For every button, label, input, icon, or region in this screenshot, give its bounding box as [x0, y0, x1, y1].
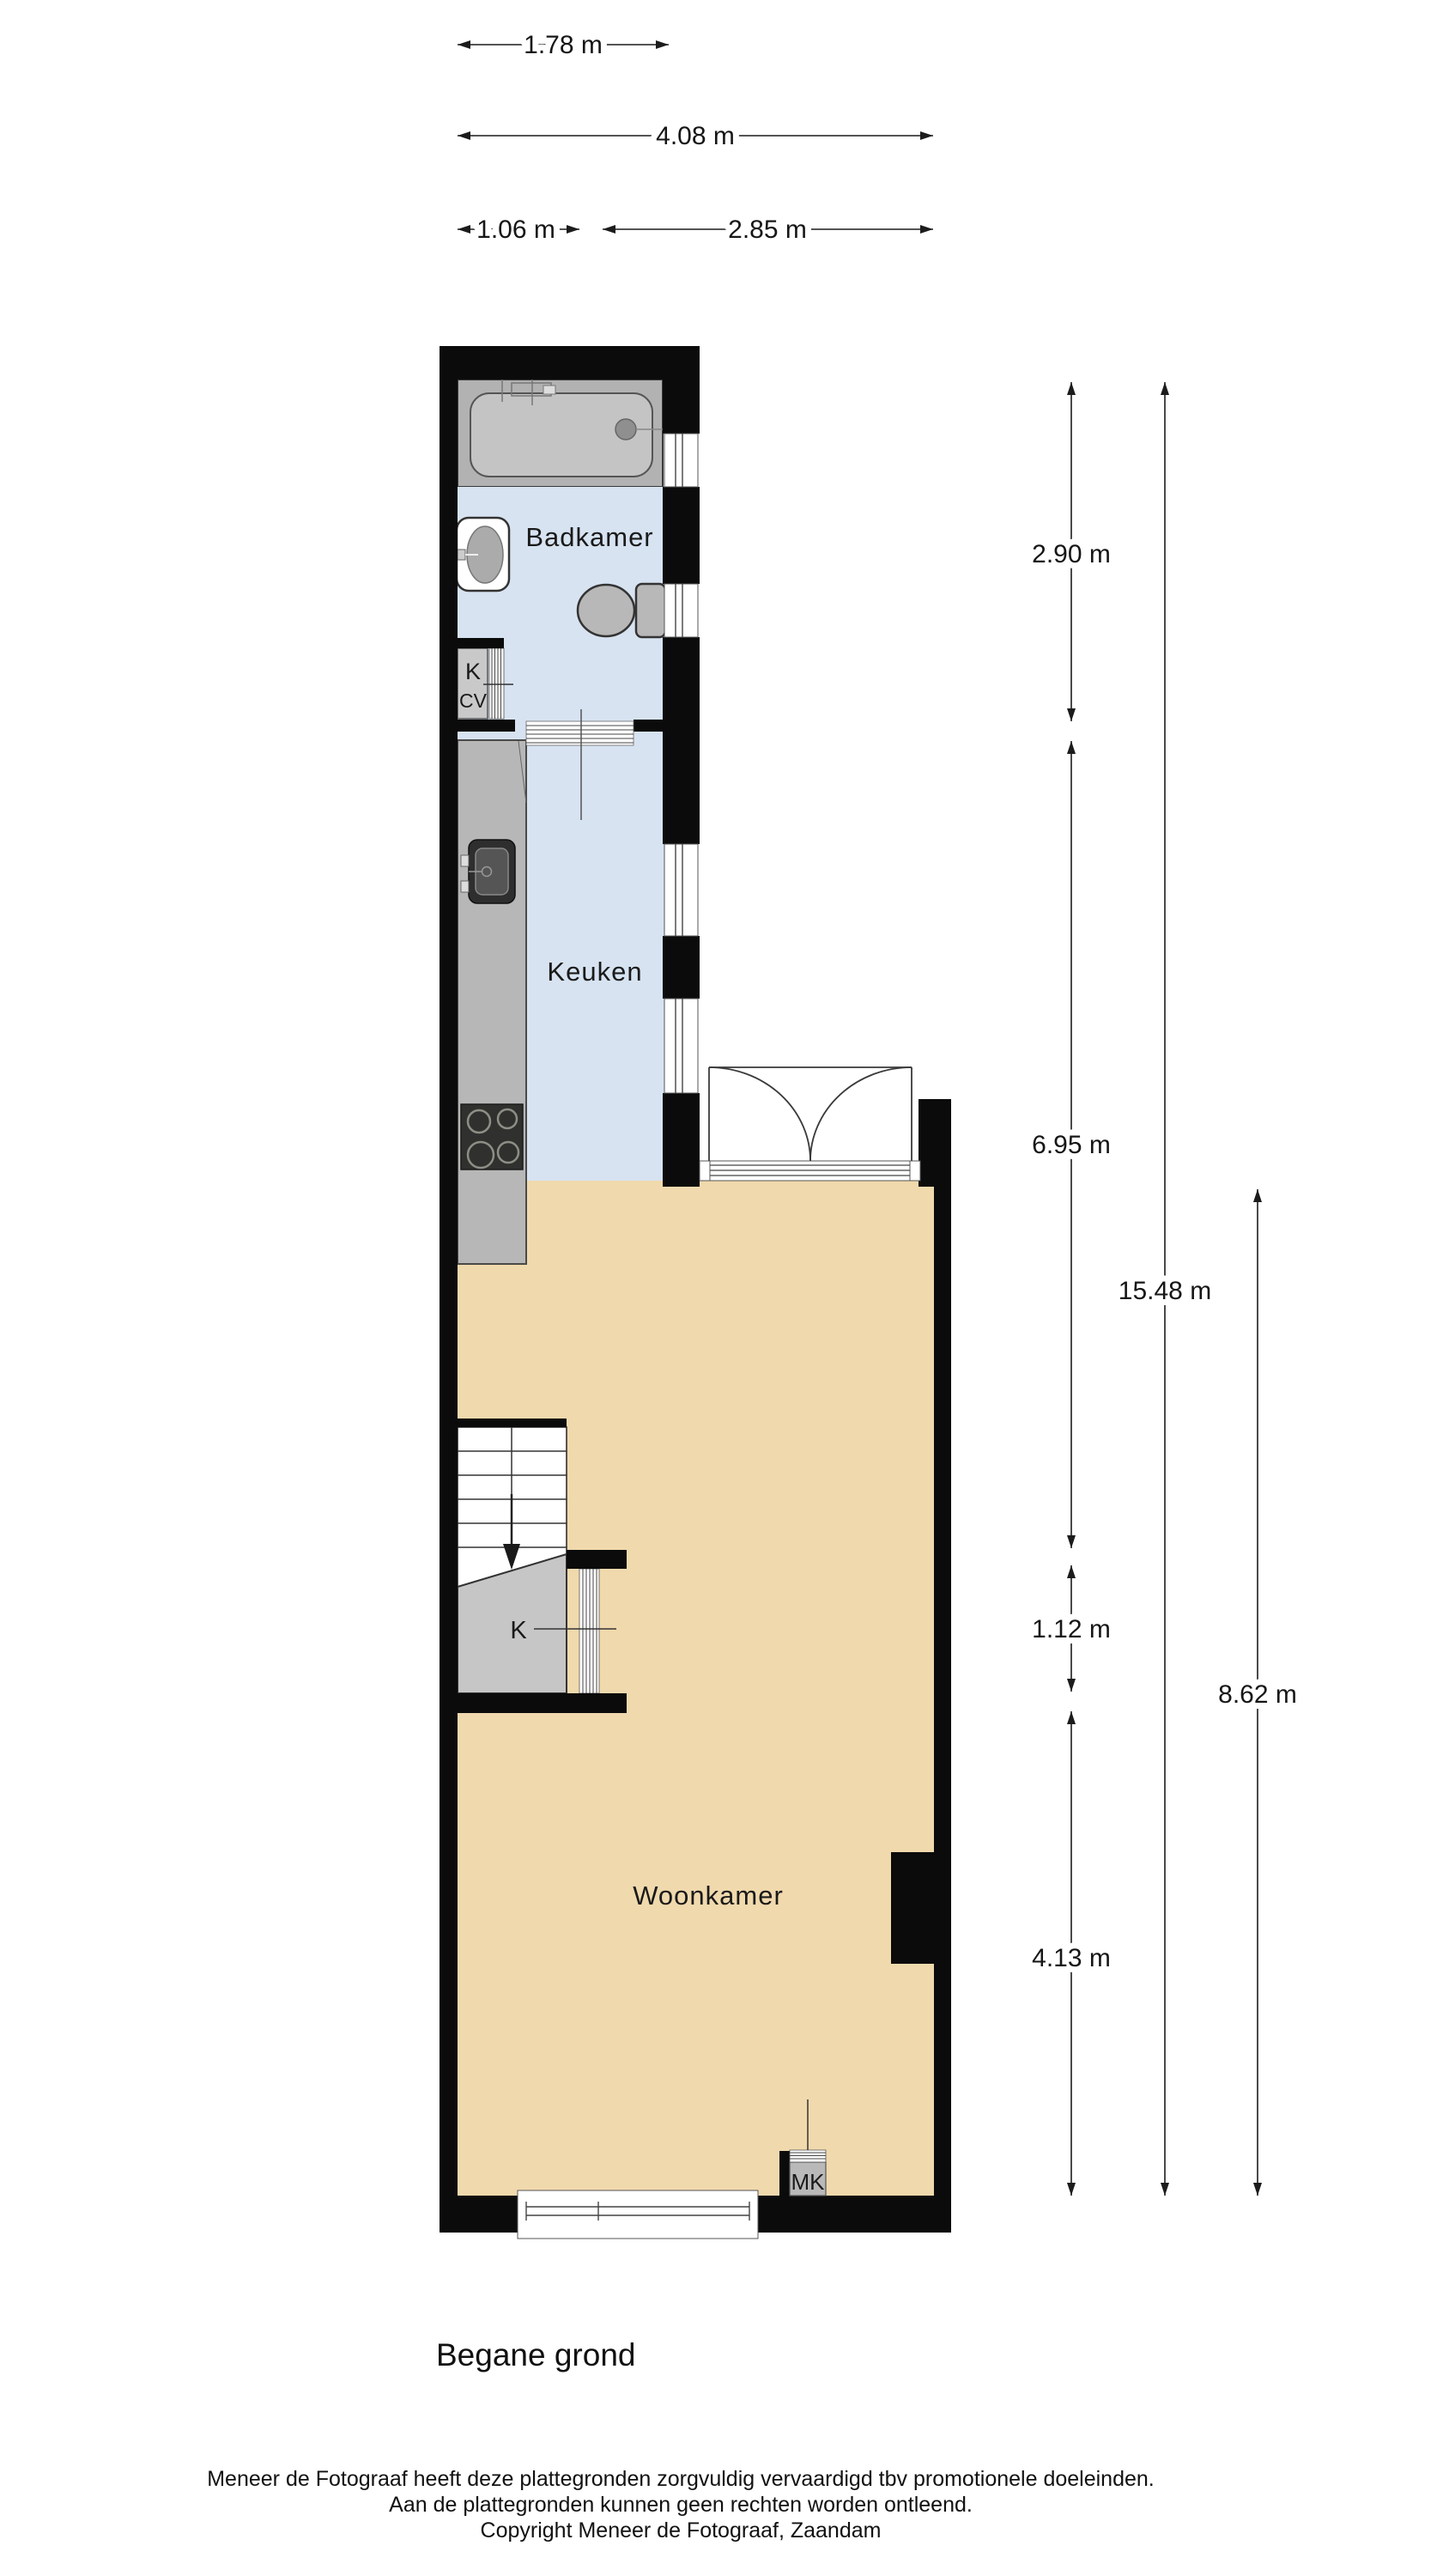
- dim-label-2-90: 2.90 m: [1032, 540, 1111, 568]
- wall-below-closet: [440, 1693, 627, 1713]
- kitchen-sink: [461, 840, 515, 903]
- toilet: [578, 584, 665, 637]
- washbasin: [457, 518, 509, 591]
- wall-stairs-side: [567, 1550, 627, 1569]
- meter-cupboard-label: MK: [791, 2169, 826, 2195]
- wall-right: [934, 1185, 951, 2233]
- bathtub-drain: [615, 419, 636, 440]
- footer-line-1: Meneer de Fotograaf heeft deze plattegro…: [207, 2467, 1155, 2491]
- door-leaves: [709, 1067, 912, 1161]
- floorplan-drawing: 1.78 m 4.08 m 1.06 m 2.85 m 2.90 m 6.95 …: [0, 0, 1449, 2576]
- kitchen-window-1: [664, 844, 698, 936]
- chimney-block: [891, 1852, 936, 1964]
- dim-label-4-13: 4.13 m: [1032, 1944, 1111, 1972]
- dim-label-1-78: 1.78 m: [524, 31, 603, 59]
- stove: [461, 1104, 523, 1170]
- wall-bathroom-kitchen: [634, 720, 663, 732]
- double-doors: [700, 1067, 920, 1181]
- bathroom-label: Badkamer: [525, 522, 653, 552]
- dim-label-4-08: 4.08 m: [656, 122, 735, 150]
- living-room-window: [518, 2190, 758, 2239]
- kitchen-counter: [458, 740, 526, 1264]
- dim-label-15-48: 15.48 m: [1119, 1277, 1211, 1305]
- footer-line-3: Copyright Meneer de Fotograaf, Zaandam: [481, 2518, 882, 2543]
- dim-label-1-06: 1.06 m: [476, 216, 555, 244]
- dim-label-2-85: 2.85 m: [728, 216, 807, 244]
- bathroom-window-2: [664, 584, 698, 637]
- dim-label-8-62: 8.62 m: [1218, 1680, 1297, 1709]
- bathroom-window-1: [664, 434, 698, 487]
- understairs-closet-label: K: [510, 1617, 527, 1644]
- kitchen-window-2: [664, 999, 698, 1093]
- door-swing-arc-right: [810, 1067, 912, 1161]
- wall-stairs-top: [458, 1419, 567, 1427]
- wall-mk-stub: [779, 2151, 790, 2196]
- dim-label-6-95: 6.95 m: [1032, 1131, 1111, 1159]
- wall-right-pier: [919, 1099, 951, 1187]
- wall-cv-closet: [440, 638, 504, 648]
- wall-left: [440, 346, 458, 2233]
- floor-title: Begane grond: [436, 2337, 635, 2372]
- living-room-label: Woonkamer: [633, 1880, 784, 1911]
- footer: Meneer de Fotograaf heeft deze plattegro…: [207, 2467, 1155, 2543]
- floorplan-page: 1.78 m 4.08 m 1.06 m 2.85 m 2.90 m 6.95 …: [0, 0, 1449, 2576]
- footer-line-2: Aan de plattegronden kunnen geen rechten…: [389, 2493, 973, 2517]
- cv-closet-label-k: K: [465, 659, 481, 684]
- dim-label-1-12: 1.12 m: [1032, 1615, 1111, 1643]
- kitchen-label: Keuken: [547, 957, 642, 987]
- kitchen-fixtures: [458, 740, 526, 1264]
- wall-right-narrow: [663, 1093, 700, 1187]
- cv-closet-label-cv: CV: [459, 690, 488, 712]
- door-swing-arc-left: [709, 1067, 810, 1161]
- wall-top: [440, 346, 700, 380]
